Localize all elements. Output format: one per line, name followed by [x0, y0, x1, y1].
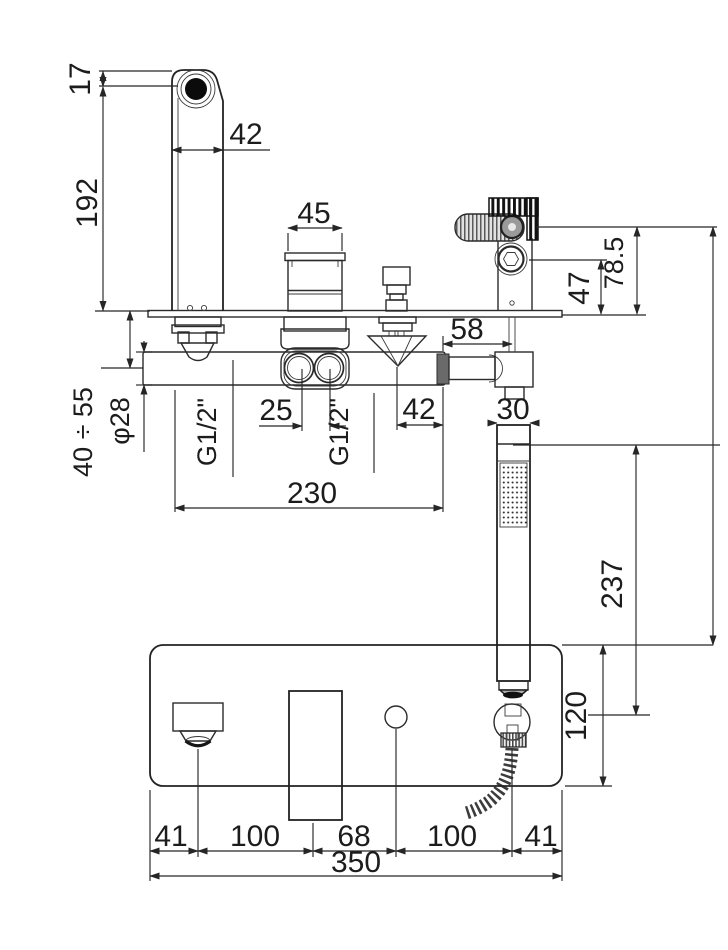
flexible-hose [466, 748, 512, 813]
spray-face [500, 463, 527, 527]
dim-label-41b: 41 [524, 820, 557, 853]
inlet-port-right [315, 354, 344, 383]
dim-label-78-5: 78.5 [599, 237, 629, 290]
dim-label-g12-right: G1/2" [324, 398, 354, 466]
dim-label-58: 58 [450, 313, 483, 346]
hose-nut [501, 733, 526, 747]
dimensions: 17 192 42 45 58 47 78.5 40 ÷ 55 φ28 25 G… [64, 62, 720, 881]
holder-clamp-side [527, 198, 538, 240]
dim-label-120: 120 [560, 691, 593, 741]
shower-nozzle [503, 692, 523, 699]
dim-label-230: 230 [287, 477, 337, 510]
dim-label-100b: 100 [427, 820, 477, 853]
dim-label-41a: 41 [154, 820, 187, 853]
holder-elbow [495, 352, 533, 387]
dim-label-350: 350 [331, 846, 381, 879]
dim-label-g12-left: G1/2" [192, 398, 222, 466]
spout-plan [173, 703, 223, 746]
dim-label-30: 30 [496, 393, 529, 426]
holder-socket [495, 243, 527, 275]
mixer-body-bar [143, 348, 445, 389]
technical-drawing-sheet: 17 192 42 45 58 47 78.5 40 ÷ 55 φ28 25 G… [0, 0, 728, 950]
dim-label-237: 237 [596, 559, 629, 609]
dim-label-phi28: φ28 [105, 397, 135, 445]
dim-label-spout-width: 42 [229, 118, 262, 151]
spout-column [172, 70, 223, 311]
diverter-plan [385, 706, 407, 728]
dim-label-17: 17 [64, 62, 97, 95]
dim-label-45: 45 [297, 197, 330, 230]
spout-tailpiece [172, 317, 224, 361]
socket-hex [504, 253, 519, 266]
mixer-cartridge [281, 253, 349, 349]
dim-label-100a: 100 [230, 820, 280, 853]
lever-handle-plan [289, 691, 342, 820]
shower-holder [455, 198, 538, 311]
hand-shower [466, 425, 530, 813]
dim-label-42-cone: 42 [402, 393, 435, 426]
dim-label-192: 192 [71, 178, 104, 228]
dim-label-47: 47 [563, 271, 596, 304]
diverter-cone [368, 336, 426, 366]
plan-view [150, 645, 562, 820]
base-plate [150, 645, 562, 786]
aerator-plan [186, 741, 211, 746]
inlet-port-left [285, 354, 314, 383]
bath-mixer-dimension-drawing: 17 192 42 45 58 47 78.5 40 ÷ 55 φ28 25 G… [0, 0, 728, 950]
spout-outline [172, 70, 223, 311]
deck-plate [148, 311, 562, 318]
dim-label-deck-range: 40 ÷ 55 [68, 387, 98, 477]
dim-label-25: 25 [259, 394, 292, 427]
aerator-outlet [185, 78, 207, 100]
